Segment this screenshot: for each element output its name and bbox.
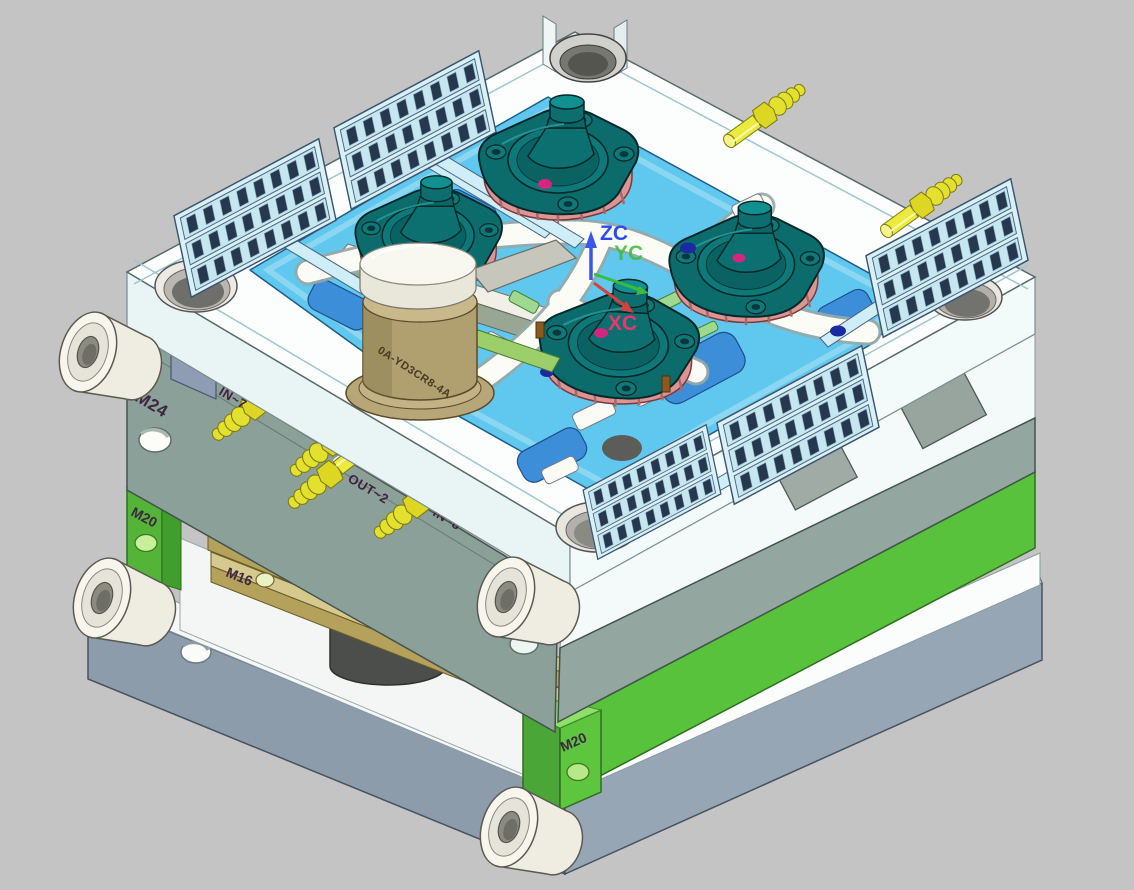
- cavity-dowel: [602, 435, 642, 461]
- sprue-cap-top: [360, 243, 476, 285]
- cad-viewport: M20 M16 M16 M20 M20: [0, 0, 1134, 890]
- yc-axis-label[interactable]: YC: [614, 242, 643, 265]
- xc-axis-label[interactable]: XC: [608, 312, 637, 335]
- mold-assembly-scene: M20 M16 M16 M20 M20: [0, 0, 1134, 890]
